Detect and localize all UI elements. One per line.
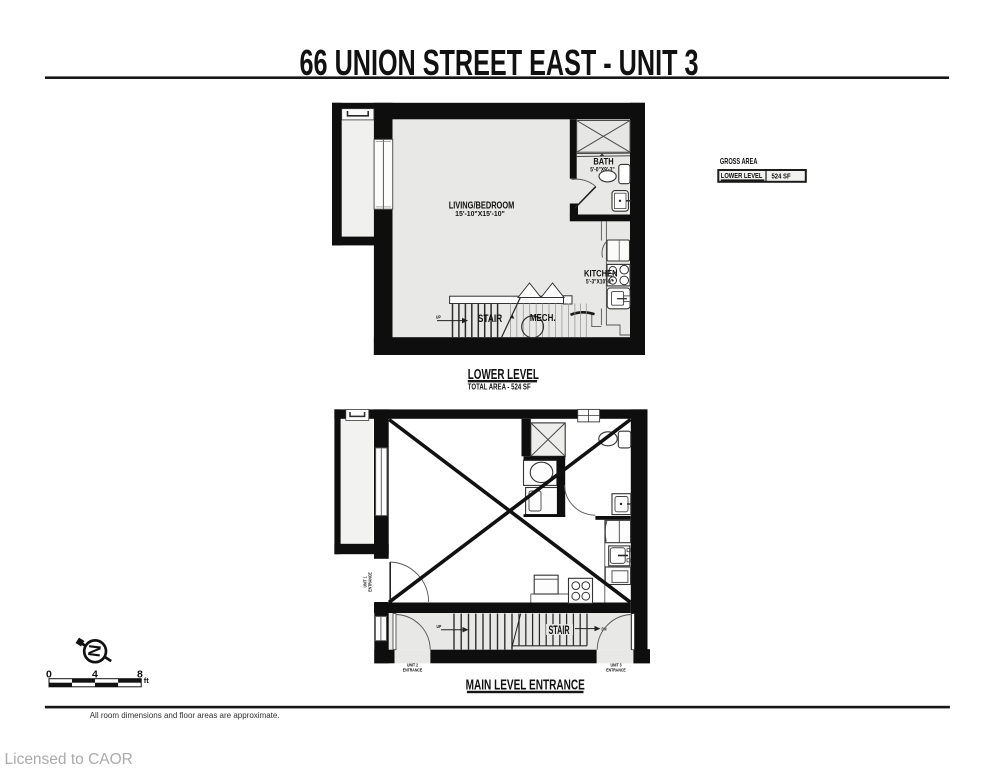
svg-text:N: N — [84, 643, 104, 658]
svg-text:15'-10"X15'-10": 15'-10"X15'-10" — [455, 211, 505, 218]
svg-text:KITCHEN: KITCHEN — [584, 268, 618, 279]
svg-text:TOTAL AREA - 524 SF: TOTAL AREA - 524 SF — [468, 382, 531, 392]
svg-text:UNIT 1ENTRANCE: UNIT 1ENTRANCE — [362, 572, 372, 592]
svg-text:LOWER LEVEL: LOWER LEVEL — [468, 366, 539, 382]
svg-text:Licensed to CAOR: Licensed to CAOR — [5, 751, 133, 768]
svg-text:BATH: BATH — [593, 157, 613, 167]
svg-text:STAIR: STAIR — [478, 313, 502, 325]
svg-text:STAIR: STAIR — [548, 624, 569, 637]
svg-text:MAIN LEVEL ENTRANCE: MAIN LEVEL ENTRANCE — [466, 675, 585, 693]
svg-text:ft: ft — [144, 676, 149, 685]
svg-text:524 SF: 524 SF — [772, 173, 791, 181]
svg-text:UNIT 2ENTRANCE: UNIT 2ENTRANCE — [403, 662, 423, 672]
svg-text:5'-3"X10'-0": 5'-3"X10'-0" — [586, 279, 614, 286]
svg-text:UP: UP — [437, 625, 442, 629]
svg-text:UNIT 3ENTRANCE: UNIT 3ENTRANCE — [606, 662, 626, 672]
svg-text:All room dimensions and floor: All room dimensions and floor areas are … — [90, 711, 280, 720]
svg-text:GROSS AREA: GROSS AREA — [720, 157, 758, 166]
svg-text:UP: UP — [436, 315, 441, 319]
svg-text:LIVING/BEDROOM: LIVING/BEDROOM — [449, 199, 515, 210]
svg-text:MECH.: MECH. — [530, 312, 556, 323]
svg-text:LOWER LEVEL: LOWER LEVEL — [721, 173, 763, 181]
